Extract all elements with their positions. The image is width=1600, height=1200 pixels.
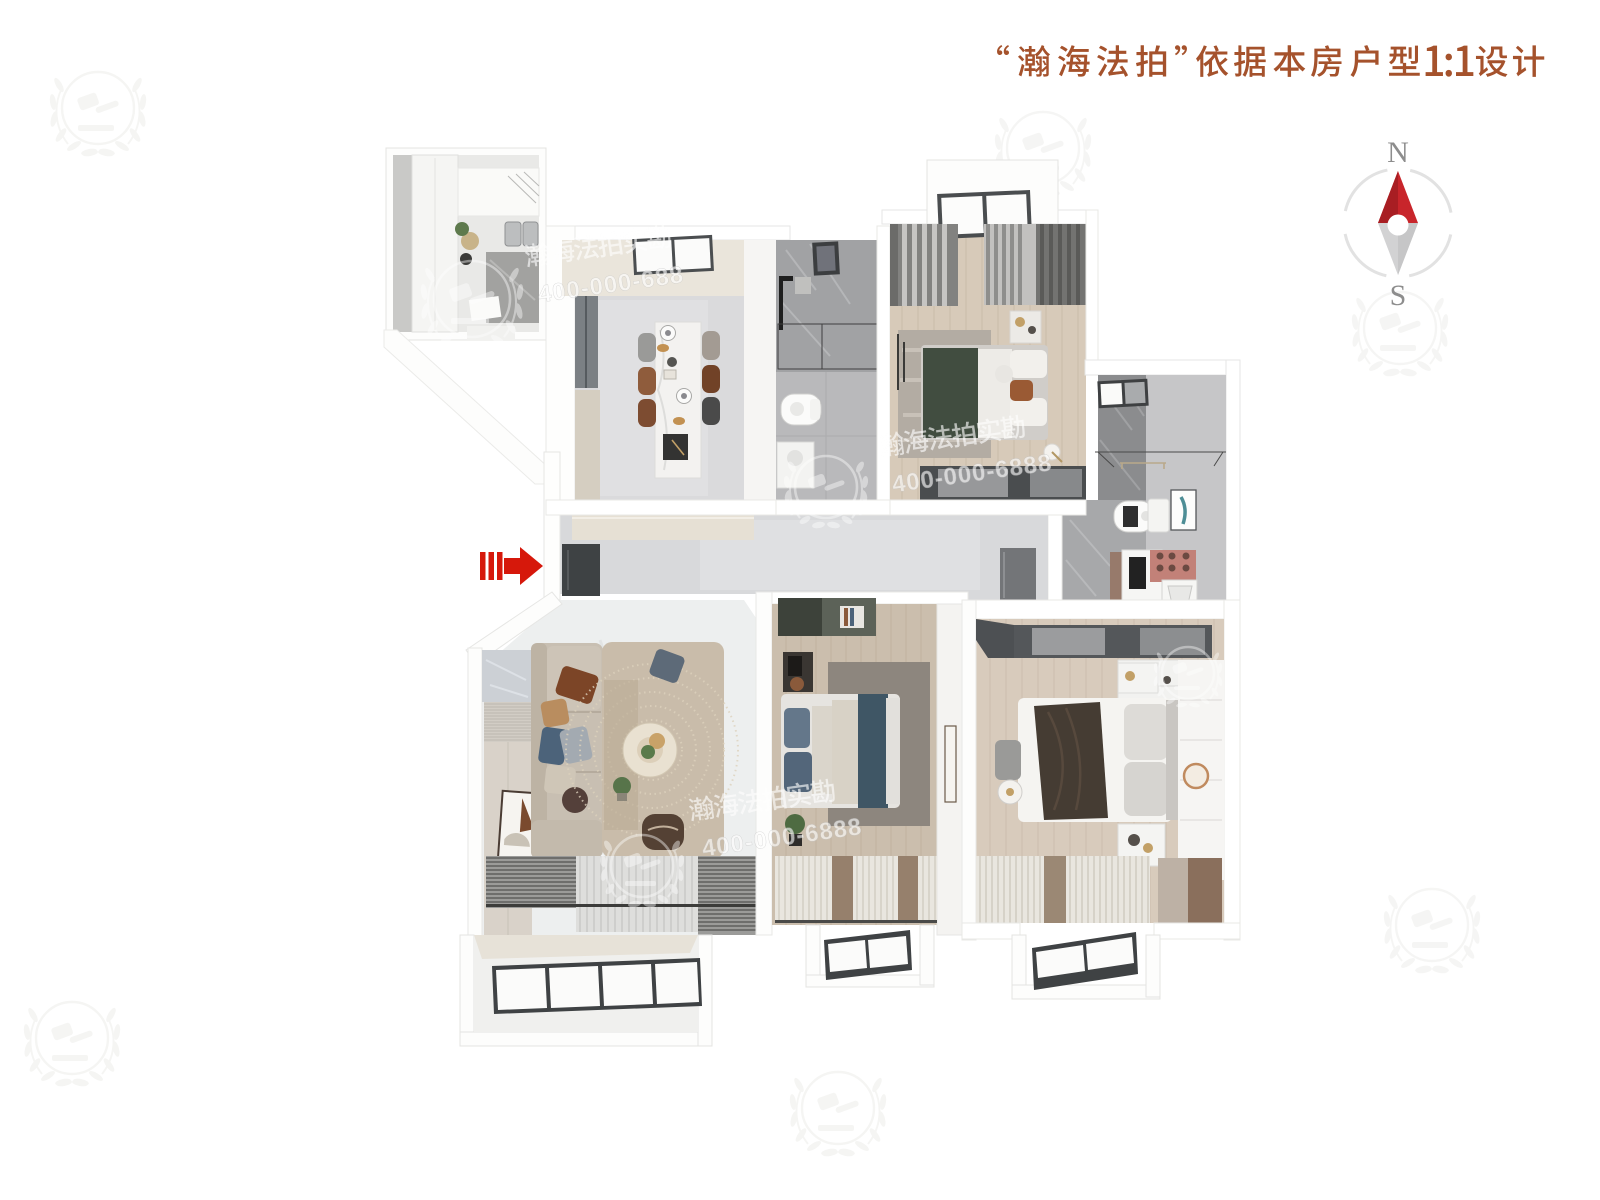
svg-text:N: N <box>1387 136 1409 169</box>
svg-text:S: S <box>1390 279 1407 312</box>
